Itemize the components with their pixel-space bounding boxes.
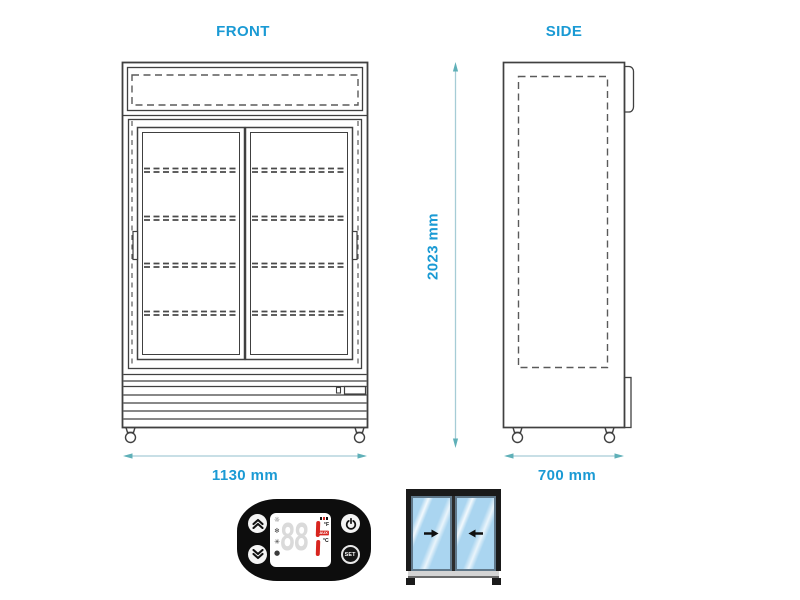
dimension-lines (123, 62, 624, 459)
door-foot-left (406, 578, 415, 585)
slide-left-arrow-icon (468, 529, 483, 538)
celsius-label: °C (323, 538, 329, 543)
height-dimension-label: 2023 mm (425, 202, 442, 292)
side-casters (513, 428, 615, 443)
chevron-up-icon (252, 518, 264, 529)
door-foot-right (492, 578, 501, 585)
left-glass-door (411, 496, 452, 571)
door-sill (408, 571, 499, 578)
sliding-doors-inset (406, 489, 501, 585)
front-width-dimension-label: 1130 mm (185, 467, 305, 484)
display-unit-column: °F AUX °C (316, 517, 329, 544)
power-button[interactable] (341, 514, 360, 533)
spec-sheet-canvas: FRONT SIDE (0, 0, 800, 600)
front-left-handle (133, 232, 138, 260)
up-button[interactable] (248, 514, 267, 533)
front-left-door (138, 128, 245, 360)
display-ghost-digits: 88 (279, 519, 308, 557)
side-view-drawing (504, 63, 634, 443)
side-bottom-rail (625, 378, 632, 428)
set-button[interactable]: SET (341, 545, 360, 564)
front-right-handle (353, 232, 358, 260)
front-right-door (246, 128, 353, 360)
aux-indicator: AUX (319, 531, 329, 536)
slide-right-arrow-icon (424, 529, 439, 538)
front-header-dashed-inset (132, 75, 358, 105)
side-top-rail (625, 67, 634, 113)
alarm-indicator-icon (320, 517, 328, 520)
door-frame-right (496, 489, 501, 571)
controller-display: ☼ ❄ ✳ ● 88 °F AUX °C (270, 513, 331, 567)
set-button-label: SET (345, 552, 356, 557)
chevron-down-icon (252, 549, 264, 560)
grille-nameplate (345, 387, 366, 395)
front-grille (124, 375, 367, 420)
power-icon (345, 518, 357, 530)
side-depth-dimension-label: 700 mm (507, 467, 627, 484)
right-glass-door (455, 496, 496, 571)
temperature-controller-inset: SET ☼ ❄ ✳ ● 88 °F AUX °C (237, 499, 371, 581)
down-button[interactable] (248, 545, 267, 564)
side-cabinet-outline (504, 63, 625, 428)
technical-drawing (0, 0, 800, 600)
front-header-panel (128, 68, 363, 111)
front-casters (126, 428, 365, 443)
side-dashed-inset (519, 77, 608, 368)
front-view-drawing (123, 63, 368, 443)
door-frame-top (406, 489, 501, 496)
fahrenheit-label: °F (324, 522, 329, 527)
grille-switch (337, 388, 341, 394)
